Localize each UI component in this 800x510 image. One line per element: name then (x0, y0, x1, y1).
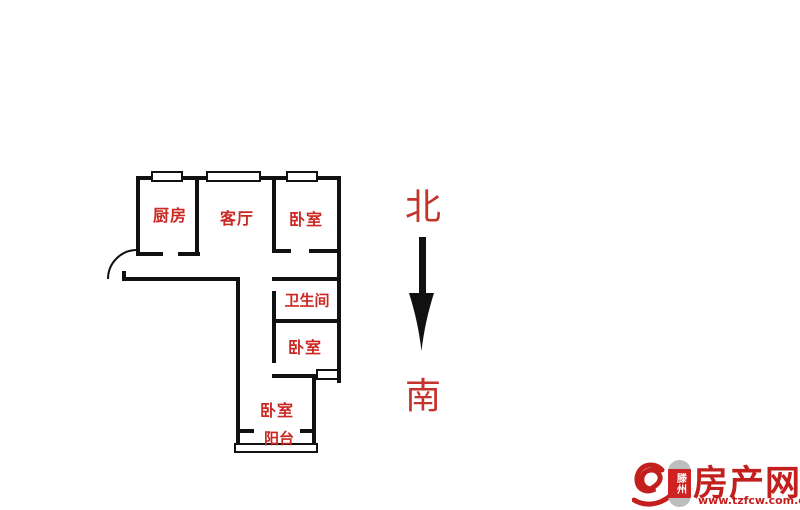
room-label-balcony: 阳台 (264, 428, 294, 449)
room-label-kitchen: 厨房 (153, 202, 187, 226)
room-label-bathroom: 卫生间 (284, 290, 329, 311)
compass-south-label: 南 (405, 367, 441, 419)
site-logo: 滕州 房产网 www.tzfcw.com.cn (632, 456, 800, 510)
compass-north-label: 北 (405, 178, 441, 230)
logo-city-label: 滕州 (675, 473, 685, 495)
room-label-bedroom-middle: 卧室 (288, 334, 322, 358)
room-label-bedroom-north: 卧室 (289, 206, 323, 230)
room-label-bedroom-south: 卧室 (260, 397, 294, 421)
compass-arrow-icon (409, 293, 434, 351)
room-label-living-room: 客厅 (220, 205, 254, 229)
logo-e-swoosh-icon (632, 456, 672, 510)
badge-middle: 滕州 (668, 469, 691, 498)
plan-overlay (0, 0, 800, 510)
floorplan-page: 厨房 客厅 卧室 卫生间 卧室 卧室 阳台 北 南 滕州 房产网 www.tzf… (0, 0, 800, 510)
compass-arrow-shaft (419, 237, 426, 299)
logo-url: www.tzfcw.com.cn (698, 494, 800, 507)
logo-city-badge: 滕州 (668, 460, 691, 507)
entry-door-arc-icon (108, 250, 137, 279)
